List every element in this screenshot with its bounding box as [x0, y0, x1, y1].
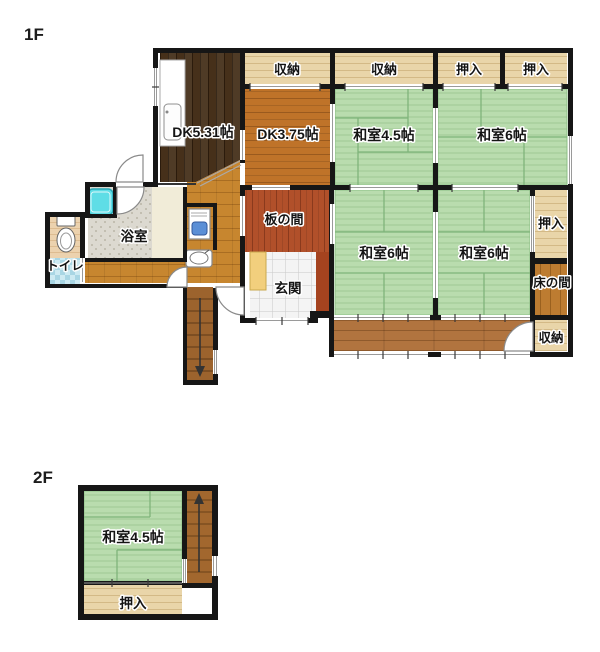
label-oshiire-top-2: 押入: [523, 62, 549, 77]
label-closet-top-1: 収納: [274, 62, 300, 77]
stairwell-void: [187, 588, 212, 614]
changing-area-floor: [152, 187, 183, 258]
label-oshiire-2f: 押入: [120, 595, 147, 611]
floors-2f: [84, 491, 212, 614]
washbasin-bowl: [190, 252, 208, 264]
label-washitsu6-mid-left: 和室6帖: [359, 245, 409, 261]
genkan-step-strip: [316, 252, 330, 318]
floor-1f: 1F: [24, 25, 573, 385]
label-dk375: DK3.75帖: [257, 126, 318, 142]
window-2f: [212, 556, 218, 576]
floor-2f-title: 2F: [33, 468, 53, 487]
floor-2f: 2F: [33, 468, 218, 620]
shoe-cabinet: [250, 252, 266, 290]
washing-machine-door: [192, 222, 207, 235]
label-closet-top-2: 収納: [371, 62, 397, 77]
toilet-bowl: [57, 228, 75, 252]
label-itanoma: 板の間: [264, 212, 303, 227]
label-washitsu45-2f: 和室4.5帖: [102, 529, 163, 545]
entrance-door-gap: [256, 317, 308, 325]
label-yokushitsu: 浴室: [121, 228, 148, 244]
label-oshiire-top-1: 押入: [456, 62, 482, 77]
kitchen-tap: [166, 111, 169, 114]
label-washitsu45-1f: 和室4.5帖: [353, 127, 414, 143]
label-toire: トイレ: [46, 259, 84, 273]
floor-plan-page: 1F: [0, 0, 600, 652]
backdoor-arc: [116, 155, 143, 182]
label-washitsu6-top: 和室6帖: [477, 127, 527, 143]
floor-1f-title: 1F: [24, 25, 44, 44]
floors-1f: [50, 53, 567, 380]
label-closet-bottom-right: 収納: [538, 330, 563, 345]
backdoor-gap: [116, 182, 143, 187]
toilet-tank: [57, 216, 75, 226]
engawa-corridor: [334, 320, 530, 351]
label-washitsu6-mid-right: 和室6帖: [459, 245, 509, 261]
label-tokonoma: 床の間: [533, 275, 571, 290]
floor-plan-drawing: 1F: [0, 0, 600, 652]
label-genkan: 玄関: [275, 280, 302, 296]
label-oshiire-right: 押入: [538, 216, 564, 231]
label-dk531: DK5.31帖: [172, 124, 233, 140]
genkan-side-door-arc: [216, 287, 244, 315]
